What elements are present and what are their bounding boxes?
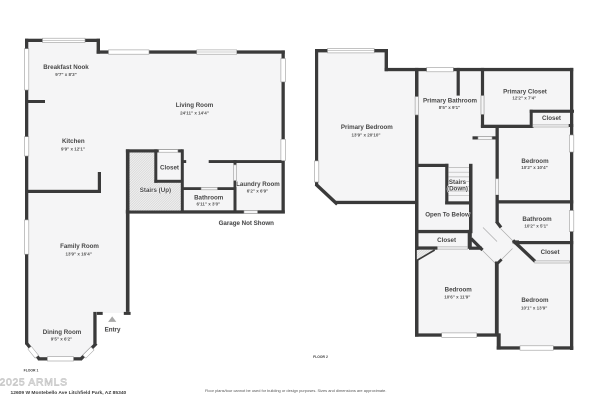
svg-text:Living Room: Living Room — [176, 102, 214, 109]
svg-text:Floor plans/tour cannot be use: Floor plans/tour cannot be used for buil… — [205, 388, 386, 393]
svg-text:8'5" x 9'1": 8'5" x 9'1" — [439, 105, 460, 110]
svg-text:Bedroom: Bedroom — [521, 158, 549, 165]
svg-text:12'2" x 7'4": 12'2" x 7'4" — [512, 96, 536, 101]
svg-text:Entry: Entry — [105, 326, 121, 333]
svg-text:Primary Bedroom: Primary Bedroom — [341, 124, 393, 131]
svg-text:Dining Room: Dining Room — [43, 329, 82, 336]
svg-text:Closet: Closet — [160, 165, 179, 172]
svg-text:(Down): (Down) — [447, 186, 468, 193]
svg-text:12609 W Montebello Ave Litchfi: 12609 W Montebello Ave Litchfield Park, … — [11, 390, 127, 396]
svg-text:13'9" x 16'4": 13'9" x 16'4" — [65, 251, 91, 256]
svg-text:Open To Below: Open To Below — [425, 211, 470, 218]
svg-text:2025 ARMLS: 2025 ARMLS — [0, 377, 68, 388]
svg-text:Primary Closet: Primary Closet — [503, 88, 547, 95]
svg-text:Laundry Room: Laundry Room — [236, 181, 280, 188]
svg-text:9'5" x 6'2": 9'5" x 6'2" — [51, 337, 72, 342]
svg-text:Closet: Closet — [541, 249, 560, 256]
svg-text:9'9" x 12'1": 9'9" x 12'1" — [61, 146, 85, 151]
svg-text:24'11" x 14'4": 24'11" x 14'4" — [180, 111, 209, 116]
svg-text:Bedroom: Bedroom — [521, 297, 549, 304]
svg-text:Family Room: Family Room — [60, 243, 99, 250]
svg-text:Primary Bathroom: Primary Bathroom — [423, 98, 477, 105]
svg-text:Closet: Closet — [437, 237, 456, 244]
svg-text:10'2" x 5'1": 10'2" x 5'1" — [524, 223, 548, 228]
svg-text:9'7" x 8'3": 9'7" x 8'3" — [55, 72, 76, 77]
svg-text:Breakfast Nook: Breakfast Nook — [43, 64, 89, 71]
svg-text:13'9" x 20'10": 13'9" x 20'10" — [352, 132, 381, 137]
svg-text:Bathroom: Bathroom — [522, 216, 552, 223]
svg-text:Stairs (Up): Stairs (Up) — [140, 187, 171, 194]
svg-text:6'11" x 3'0": 6'11" x 3'0" — [197, 202, 221, 207]
svg-text:6'2" x 6'9": 6'2" x 6'9" — [247, 189, 268, 194]
svg-text:FLOOR 2: FLOOR 2 — [313, 355, 328, 359]
svg-text:Closet: Closet — [542, 115, 561, 122]
svg-text:10'6" x 11'9": 10'6" x 11'9" — [444, 294, 470, 299]
svg-text:Bathroom: Bathroom — [194, 195, 224, 202]
svg-text:Kitchen: Kitchen — [62, 138, 85, 145]
svg-text:10'1" x 13'9": 10'1" x 13'9" — [521, 305, 547, 310]
svg-text:10'2" x 10'4": 10'2" x 10'4" — [521, 165, 547, 170]
svg-text:Garage Not Shown: Garage Not Shown — [219, 220, 275, 227]
svg-text:FLOOR 1: FLOOR 1 — [24, 369, 39, 373]
svg-text:Bedroom: Bedroom — [445, 286, 473, 293]
